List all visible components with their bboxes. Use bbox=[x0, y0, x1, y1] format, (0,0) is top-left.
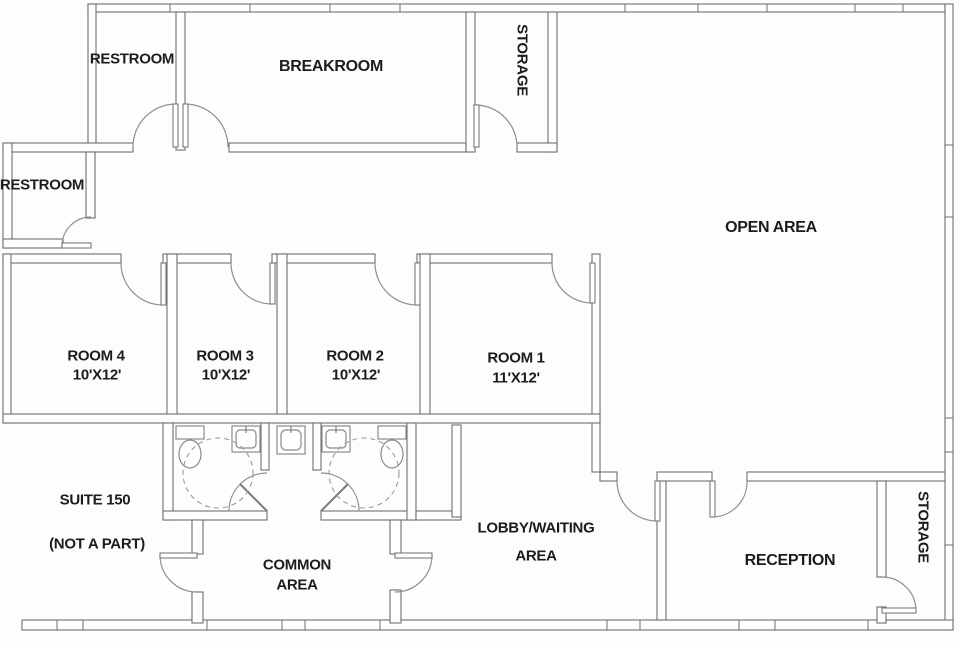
room-label-lobby-line2: AREA bbox=[515, 549, 556, 564]
suite-label: SUITE 150 bbox=[60, 493, 131, 508]
room-label-storage-top: STORAGE bbox=[515, 24, 530, 96]
room-label-room1: ROOM 1 bbox=[487, 351, 544, 366]
room-label-breakroom: BREAKROOM bbox=[279, 59, 383, 75]
room-label-reception: RECEPTION bbox=[745, 553, 836, 569]
room-label-common-line2: AREA bbox=[276, 578, 317, 593]
room-label-room3: ROOM 3 bbox=[196, 349, 253, 364]
room-label-room4: ROOM 4 bbox=[67, 349, 124, 364]
room-label-storage-right: STORAGE bbox=[916, 491, 931, 563]
suite-note: (NOT A PART) bbox=[49, 537, 145, 552]
sink-icon bbox=[322, 426, 350, 452]
drinking-fountain-icon bbox=[277, 426, 305, 454]
room-size-room2: 10'X12' bbox=[332, 368, 380, 383]
room-label-lobby-line1: LOBBY/WAITING bbox=[478, 521, 595, 536]
restroom-fixtures bbox=[176, 426, 406, 508]
room-label-restroom-left: RESTROOM bbox=[0, 178, 84, 193]
toilet-icon bbox=[378, 426, 406, 468]
toilet-icon bbox=[176, 426, 204, 468]
room-label-open-area: OPEN AREA bbox=[725, 220, 817, 236]
sink-icon bbox=[232, 426, 260, 452]
room-size-room1: 11'X12' bbox=[492, 371, 540, 386]
room-label-restroom-top: RESTROOM bbox=[90, 52, 174, 67]
turning-radius-circle-icon bbox=[329, 438, 399, 508]
floor-plan: RESTROOM BREAKROOM STORAGE RESTROOM OPEN… bbox=[0, 0, 960, 647]
turning-radius-circle-icon bbox=[183, 438, 253, 508]
room-size-room3: 10'X12' bbox=[202, 368, 250, 383]
room-label-common-line1: COMMON bbox=[263, 558, 331, 573]
room-label-room2: ROOM 2 bbox=[326, 349, 383, 364]
room-size-room4: 10'X12' bbox=[73, 368, 121, 383]
